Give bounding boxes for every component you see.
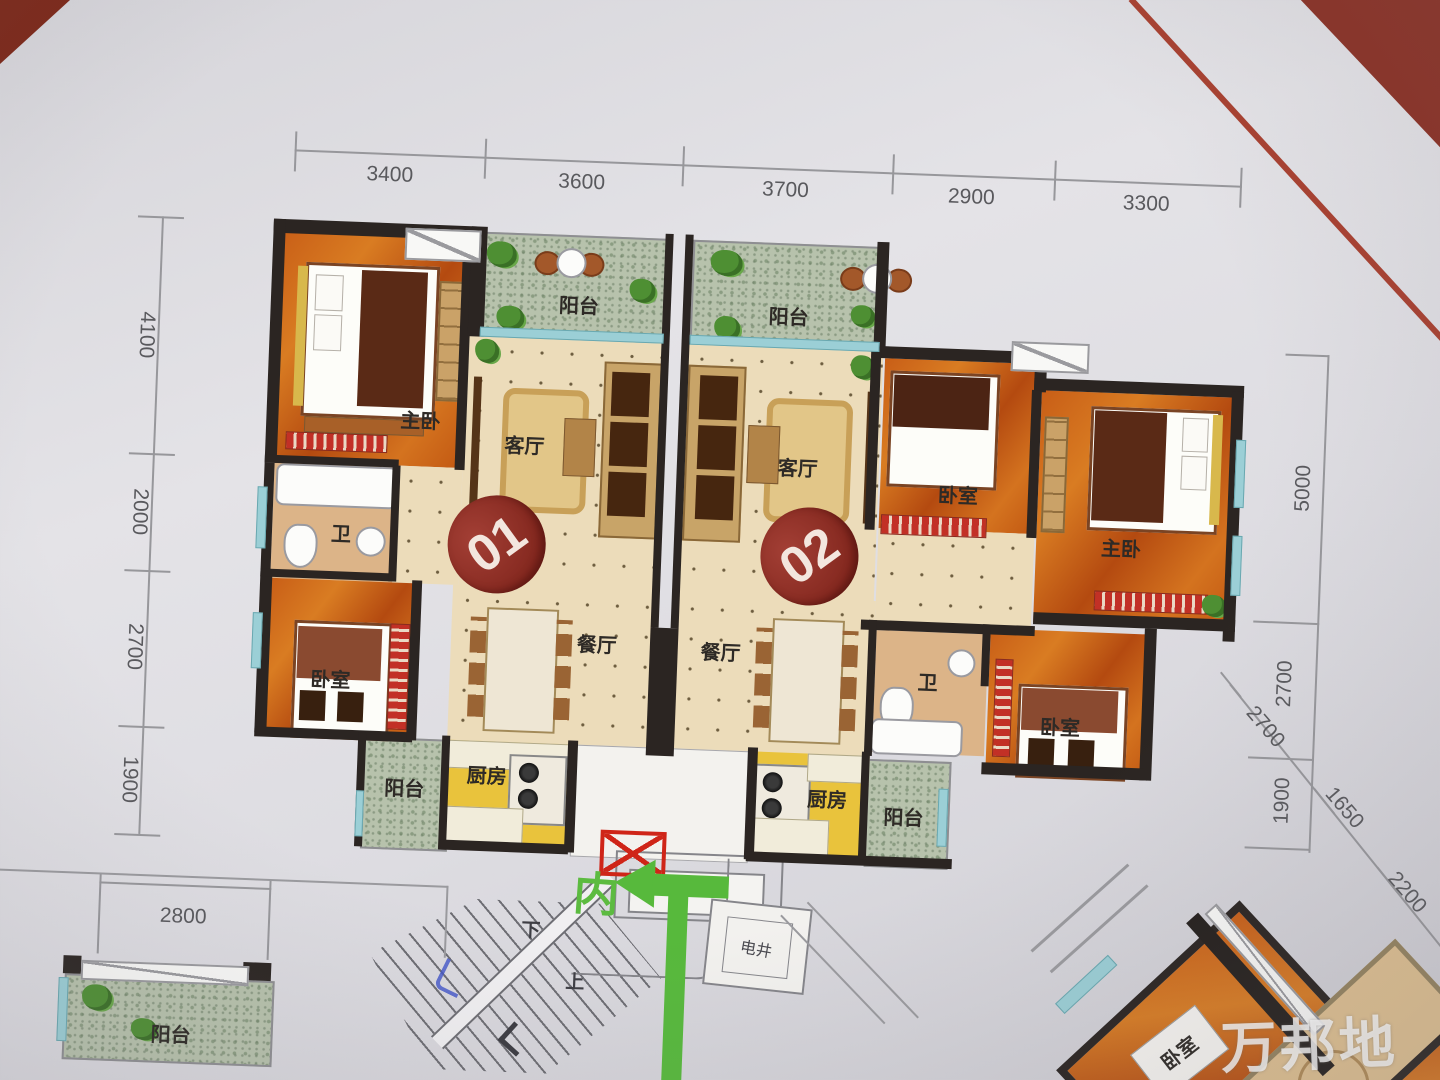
dim-tick bbox=[1220, 672, 1242, 698]
watermark: 万邦地产 bbox=[1219, 996, 1440, 1080]
dim-label: 4100 bbox=[134, 311, 160, 359]
sofa-cushion bbox=[611, 372, 651, 417]
blanket bbox=[1091, 410, 1167, 523]
dim-label: 3300 bbox=[1122, 191, 1170, 217]
entry-marker-glyph: 内 bbox=[571, 857, 622, 926]
bay-window bbox=[405, 228, 482, 263]
corridor-line bbox=[1050, 884, 1149, 973]
dim-tick bbox=[1248, 756, 1314, 761]
room-label-bedroom-top-02: 卧室 bbox=[937, 479, 978, 510]
pillow bbox=[299, 690, 326, 721]
room-label-dining-02: 餐厅 bbox=[700, 636, 741, 667]
bathtub bbox=[870, 718, 963, 758]
room-label-living-02: 客厅 bbox=[777, 452, 818, 483]
dim-line-right bbox=[1308, 355, 1329, 853]
dim-tick bbox=[267, 880, 272, 960]
sofa-cushion bbox=[699, 375, 739, 420]
bathtub bbox=[275, 463, 399, 510]
dim-tick bbox=[114, 833, 160, 837]
unit-01-number: 01 bbox=[456, 503, 538, 586]
window-glass bbox=[1234, 440, 1247, 508]
wardrobe bbox=[1041, 416, 1069, 533]
dim-label: 2000 bbox=[127, 488, 153, 536]
pillow bbox=[1068, 740, 1095, 769]
room-label-master-02: 主卧 bbox=[1100, 532, 1141, 563]
building-line bbox=[0, 868, 449, 888]
room-label-bedroom-01: 卧室 bbox=[310, 663, 351, 694]
dim-tick bbox=[1285, 354, 1329, 358]
room-label-balcony-top-02: 阳台 bbox=[768, 300, 809, 331]
coffee-table bbox=[746, 425, 780, 484]
sofa-cushion bbox=[607, 472, 647, 517]
dining-table bbox=[482, 607, 559, 734]
room-label-living-01: 客厅 bbox=[504, 429, 545, 460]
room-label-dining-01: 餐厅 bbox=[576, 628, 617, 659]
entry-arrow-body bbox=[652, 874, 729, 899]
window-glass bbox=[251, 612, 263, 668]
dim-label: 2800 bbox=[159, 904, 207, 930]
wall bbox=[63, 955, 82, 974]
dim-label: 2200 bbox=[1383, 867, 1432, 918]
room-label-kitchen-02: 厨房 bbox=[807, 783, 848, 814]
window-glass bbox=[1230, 536, 1242, 596]
room-label-balcony-top-01: 阳台 bbox=[558, 289, 599, 320]
dim-label: 2700 bbox=[122, 623, 148, 671]
stair-up-label: 上 bbox=[565, 967, 585, 995]
dim-tick bbox=[1253, 621, 1319, 626]
dim-tick bbox=[1239, 168, 1243, 208]
dim-label: 3700 bbox=[762, 177, 810, 203]
blanket bbox=[357, 270, 428, 408]
room-label-bath-02: 卫 bbox=[917, 666, 938, 696]
dim-label: 2700 bbox=[1272, 660, 1298, 708]
dim-label: 1900 bbox=[116, 756, 142, 804]
dining-table bbox=[768, 618, 845, 745]
dim-label: 5000 bbox=[1291, 465, 1317, 513]
neighbour-balcony-label: 阳台 bbox=[150, 1018, 191, 1049]
hallway-02 bbox=[875, 528, 1035, 632]
dim-tick bbox=[1245, 846, 1311, 851]
striped-mat bbox=[992, 659, 1014, 758]
floorplan-drawing: 3400 3600 3700 2900 3300 4100 2000 2700 … bbox=[0, 0, 1440, 1080]
room-label-kitchen-01: 厨房 bbox=[466, 759, 507, 790]
corridor-line bbox=[1030, 864, 1129, 953]
sofa-cushion bbox=[695, 475, 735, 520]
pillow bbox=[1028, 738, 1055, 767]
pillow bbox=[313, 314, 342, 351]
dim-label: 1650 bbox=[1320, 783, 1369, 834]
window-glass bbox=[1055, 955, 1117, 1014]
floorplan-photo: { "photo": { "watermark": "万邦地产" }, "dim… bbox=[0, 0, 1440, 1080]
pillow bbox=[337, 691, 364, 722]
striped-mat bbox=[880, 514, 987, 538]
unit-02-number: 02 bbox=[768, 515, 850, 598]
room-label-bath-01: 卫 bbox=[330, 518, 351, 548]
dim-line-bottom-left bbox=[99, 881, 271, 890]
blanket bbox=[892, 375, 990, 431]
wall bbox=[646, 627, 679, 756]
dim-label: 2700 bbox=[1241, 702, 1290, 753]
sofa-cushion bbox=[697, 425, 737, 470]
pillow bbox=[1180, 456, 1207, 491]
dim-label: 2900 bbox=[948, 185, 996, 211]
bay-window bbox=[1011, 341, 1090, 374]
pillow bbox=[1182, 418, 1209, 453]
room-label-master-01: 主卧 bbox=[400, 404, 441, 435]
room-label-balcony-bottom-01: 阳台 bbox=[384, 772, 425, 803]
dim-tick bbox=[97, 873, 102, 953]
room-label-bedroom-bottom-02: 卧室 bbox=[1040, 711, 1081, 742]
dim-label: 3600 bbox=[558, 170, 606, 196]
striped-mat bbox=[285, 431, 388, 453]
stair-down-label: 下 bbox=[521, 915, 541, 943]
dim-label: 3400 bbox=[366, 162, 414, 188]
dim-label: 1900 bbox=[1270, 777, 1296, 825]
coffee-table bbox=[562, 418, 596, 477]
room-label-balcony-bottom-02: 阳台 bbox=[883, 801, 924, 832]
pillow bbox=[315, 274, 344, 311]
sofa-cushion bbox=[609, 422, 649, 467]
